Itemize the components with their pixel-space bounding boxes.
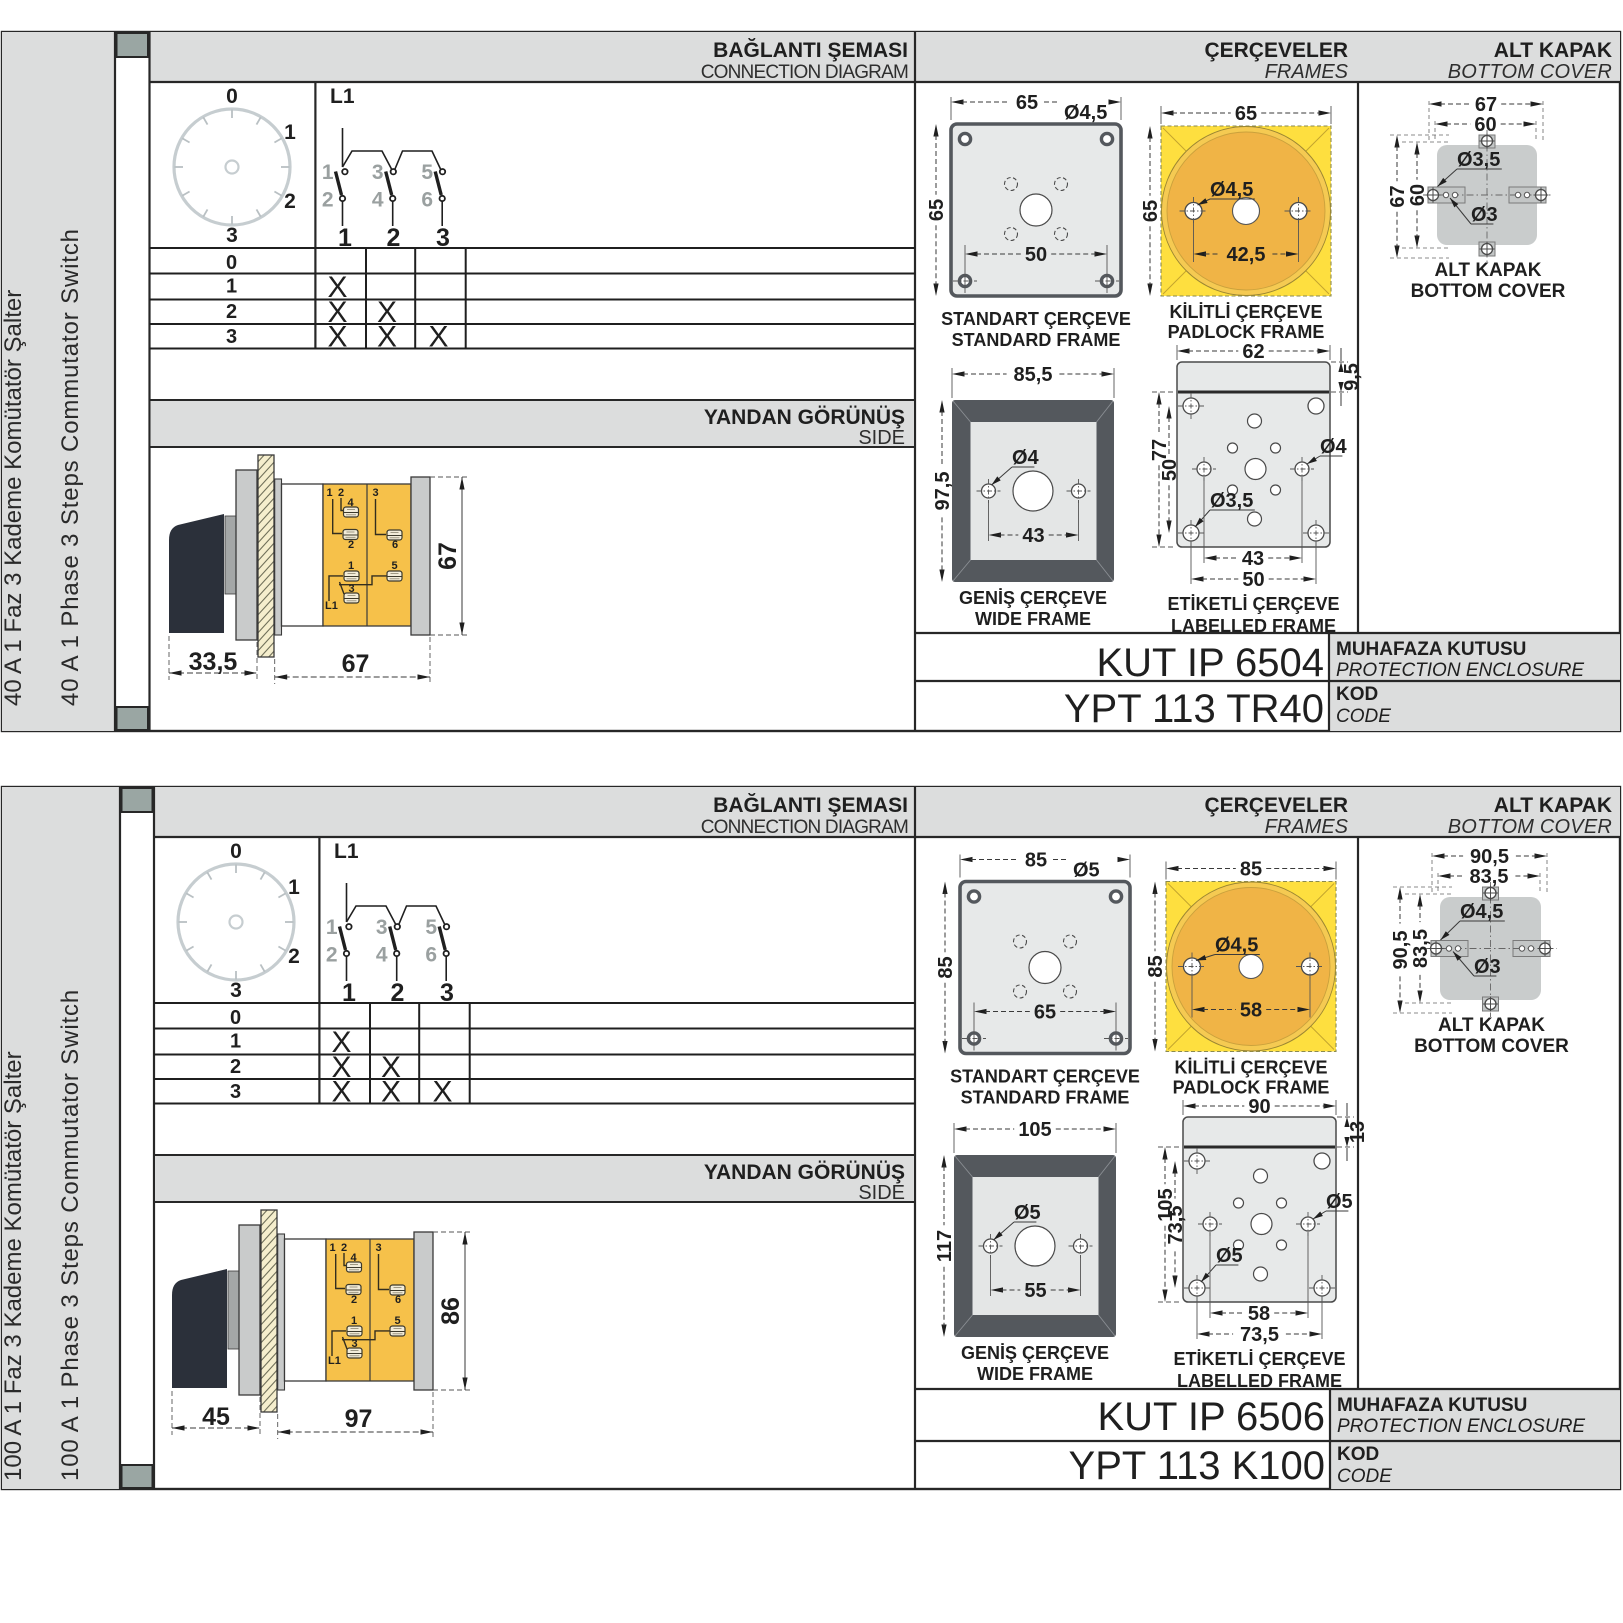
svg-text:YANDAN GÖRÜNÜŞ: YANDAN GÖRÜNÜŞ bbox=[704, 406, 905, 429]
svg-text:65: 65 bbox=[1235, 103, 1257, 125]
svg-text:1: 1 bbox=[226, 276, 237, 298]
svg-text:STANDART ÇERÇEVE: STANDART ÇERÇEVE bbox=[950, 1067, 1140, 1087]
svg-text:STANDART ÇERÇEVE: STANDART ÇERÇEVE bbox=[941, 309, 1131, 329]
svg-text:3: 3 bbox=[230, 1081, 241, 1103]
svg-text:Ø5: Ø5 bbox=[1326, 1191, 1353, 1213]
svg-text:6: 6 bbox=[392, 539, 398, 551]
svg-text:6: 6 bbox=[395, 1294, 401, 1306]
svg-text:117: 117 bbox=[934, 1230, 956, 1262]
svg-text:1: 1 bbox=[284, 121, 296, 144]
svg-text:3: 3 bbox=[226, 224, 238, 247]
svg-text:67: 67 bbox=[342, 650, 370, 678]
svg-text:CODE: CODE bbox=[1337, 1466, 1392, 1487]
svg-text:PADLOCK FRAME: PADLOCK FRAME bbox=[1168, 322, 1325, 342]
svg-text:2: 2 bbox=[326, 944, 338, 967]
svg-text:2: 2 bbox=[341, 1242, 347, 1254]
svg-text:65: 65 bbox=[1016, 92, 1038, 114]
svg-text:GENİŞ ÇERÇEVE: GENİŞ ÇERÇEVE bbox=[959, 588, 1107, 608]
svg-text:40 A 1 Phase 3 Steps Commutato: 40 A 1 Phase 3 Steps Commutator Switch bbox=[57, 228, 84, 706]
svg-text:BOTTOM COVER: BOTTOM COVER bbox=[1448, 61, 1612, 83]
svg-text:KOD: KOD bbox=[1336, 684, 1378, 705]
svg-text:40 A 1 Faz 3 Kademe Komütatör: 40 A 1 Faz 3 Kademe Komütatör Şalter bbox=[0, 290, 27, 706]
svg-text:4: 4 bbox=[350, 1252, 357, 1264]
svg-text:1: 1 bbox=[326, 487, 332, 499]
svg-text:KİLİTLİ ÇERÇEVE: KİLİTLİ ÇERÇEVE bbox=[1169, 302, 1322, 322]
svg-text:Ø3,5: Ø3,5 bbox=[1210, 490, 1253, 512]
svg-text:4: 4 bbox=[372, 189, 384, 212]
svg-text:73,5: 73,5 bbox=[1165, 1206, 1187, 1245]
svg-text:50: 50 bbox=[1242, 569, 1264, 591]
svg-text:3: 3 bbox=[230, 979, 242, 1002]
svg-text:4: 4 bbox=[376, 944, 388, 967]
svg-text:YPT 113 K100: YPT 113 K100 bbox=[1069, 1444, 1325, 1488]
svg-text:WIDE FRAME: WIDE FRAME bbox=[975, 609, 1091, 629]
svg-text:BOTTOM COVER: BOTTOM COVER bbox=[1448, 816, 1612, 838]
svg-text:Ø3: Ø3 bbox=[1471, 204, 1498, 226]
svg-text:GENİŞ ÇERÇEVE: GENİŞ ÇERÇEVE bbox=[961, 1343, 1109, 1363]
svg-text:Ø5: Ø5 bbox=[1014, 1202, 1041, 1224]
svg-text:97,5: 97,5 bbox=[932, 472, 954, 511]
svg-text:90,5: 90,5 bbox=[1470, 846, 1509, 868]
svg-text:4: 4 bbox=[347, 497, 354, 509]
svg-text:L1: L1 bbox=[328, 1355, 341, 1367]
svg-text:X: X bbox=[377, 321, 397, 354]
svg-text:0: 0 bbox=[230, 840, 242, 863]
svg-text:L1: L1 bbox=[325, 600, 338, 612]
svg-text:L1: L1 bbox=[334, 840, 359, 863]
svg-text:PROTECTION ENCLOSURE: PROTECTION ENCLOSURE bbox=[1337, 1416, 1585, 1437]
svg-text:3: 3 bbox=[372, 487, 378, 499]
svg-text:0: 0 bbox=[226, 85, 238, 108]
svg-text:1: 1 bbox=[329, 1242, 335, 1254]
svg-text:0: 0 bbox=[230, 1007, 241, 1029]
svg-text:CODE: CODE bbox=[1336, 706, 1391, 727]
svg-text:X: X bbox=[381, 1076, 401, 1109]
svg-text:Ø4,5: Ø4,5 bbox=[1210, 179, 1253, 201]
svg-text:BOTTOM COVER: BOTTOM COVER bbox=[1411, 281, 1566, 302]
svg-text:2: 2 bbox=[226, 301, 237, 323]
svg-text:73,5: 73,5 bbox=[1240, 1324, 1279, 1346]
svg-text:3: 3 bbox=[376, 916, 388, 939]
svg-text:3: 3 bbox=[226, 326, 237, 348]
svg-text:43: 43 bbox=[1022, 525, 1044, 547]
svg-text:Ø5: Ø5 bbox=[1073, 860, 1100, 882]
svg-text:YPT 113 TR40: YPT 113 TR40 bbox=[1064, 687, 1324, 731]
svg-text:50: 50 bbox=[1025, 244, 1047, 266]
svg-text:ETİKETLİ ÇERÇEVE: ETİKETLİ ÇERÇEVE bbox=[1173, 1349, 1345, 1369]
svg-text:Ø4,5: Ø4,5 bbox=[1215, 935, 1258, 957]
svg-text:97: 97 bbox=[345, 1405, 373, 1433]
svg-text:ALT KAPAK: ALT KAPAK bbox=[1494, 39, 1612, 62]
svg-text:1: 1 bbox=[351, 1315, 357, 1327]
svg-text:5: 5 bbox=[425, 916, 437, 939]
svg-text:2: 2 bbox=[230, 1056, 241, 1078]
svg-text:42,5: 42,5 bbox=[1227, 244, 1266, 266]
svg-text:77: 77 bbox=[1149, 439, 1171, 461]
svg-text:KOD: KOD bbox=[1337, 1444, 1379, 1465]
svg-text:100 A 1 Faz 3 Kademe Komütatör: 100 A 1 Faz 3 Kademe Komütatör Şalter bbox=[0, 1051, 27, 1481]
svg-text:2: 2 bbox=[288, 945, 300, 968]
svg-text:KUT IP 6506: KUT IP 6506 bbox=[1097, 1395, 1325, 1439]
svg-text:2: 2 bbox=[284, 190, 296, 213]
svg-text:13: 13 bbox=[1347, 1121, 1369, 1143]
svg-text:2: 2 bbox=[338, 487, 344, 499]
svg-text:BOTTOM COVER: BOTTOM COVER bbox=[1414, 1036, 1569, 1057]
svg-text:50: 50 bbox=[1159, 459, 1181, 481]
svg-text:MUHAFAZA KUTUSU: MUHAFAZA KUTUSU bbox=[1336, 639, 1526, 660]
svg-text:1: 1 bbox=[348, 560, 354, 572]
svg-text:105: 105 bbox=[1018, 1119, 1051, 1141]
svg-text:STANDARD FRAME: STANDARD FRAME bbox=[961, 1088, 1130, 1108]
svg-text:100 A 1 Phase 3 Steps Commutat: 100 A 1 Phase 3 Steps Commutator Switch bbox=[57, 989, 84, 1481]
svg-text:ETİKETLİ ÇERÇEVE: ETİKETLİ ÇERÇEVE bbox=[1167, 594, 1339, 614]
svg-text:1: 1 bbox=[322, 161, 334, 184]
svg-text:1: 1 bbox=[326, 916, 338, 939]
svg-text:90,5: 90,5 bbox=[1390, 931, 1412, 970]
svg-text:85: 85 bbox=[1025, 850, 1047, 872]
svg-text:Ø4,5: Ø4,5 bbox=[1064, 102, 1107, 124]
svg-text:83,5: 83,5 bbox=[1470, 866, 1509, 888]
svg-text:58: 58 bbox=[1248, 1303, 1270, 1325]
svg-text:KİLİTLİ ÇERÇEVE: KİLİTLİ ÇERÇEVE bbox=[1174, 1058, 1327, 1078]
svg-text:Ø5: Ø5 bbox=[1216, 1245, 1243, 1267]
svg-text:6: 6 bbox=[425, 944, 437, 967]
svg-text:62: 62 bbox=[1242, 341, 1264, 363]
svg-text:5: 5 bbox=[421, 161, 433, 184]
svg-text:X: X bbox=[331, 1076, 351, 1109]
svg-text:PADLOCK FRAME: PADLOCK FRAME bbox=[1173, 1078, 1330, 1098]
svg-text:67: 67 bbox=[1475, 94, 1497, 116]
svg-text:67: 67 bbox=[1387, 185, 1409, 207]
svg-text:85: 85 bbox=[935, 956, 957, 978]
svg-text:BAĞLANTI ŞEMASI: BAĞLANTI ŞEMASI bbox=[713, 38, 908, 62]
svg-text:65: 65 bbox=[1034, 1002, 1056, 1024]
svg-text:X: X bbox=[432, 1076, 452, 1109]
svg-text:Ø3,5: Ø3,5 bbox=[1457, 149, 1500, 171]
svg-text:KUT IP 6504: KUT IP 6504 bbox=[1096, 641, 1324, 685]
svg-text:FRAMES: FRAMES bbox=[1265, 61, 1349, 83]
svg-text:2: 2 bbox=[322, 189, 334, 212]
svg-text:5: 5 bbox=[391, 560, 397, 572]
svg-text:Ø4: Ø4 bbox=[1320, 436, 1348, 458]
svg-text:85: 85 bbox=[1145, 955, 1167, 977]
svg-text:BAĞLANTI ŞEMASI: BAĞLANTI ŞEMASI bbox=[713, 793, 908, 817]
svg-text:SIDE: SIDE bbox=[858, 427, 905, 449]
svg-text:ÇERÇEVELER: ÇERÇEVELER bbox=[1204, 794, 1348, 817]
svg-text:X: X bbox=[428, 321, 448, 354]
svg-text:45: 45 bbox=[202, 1403, 230, 1431]
svg-text:ALT KAPAK: ALT KAPAK bbox=[1435, 260, 1542, 281]
svg-text:0: 0 bbox=[226, 252, 237, 274]
svg-text:L1: L1 bbox=[330, 85, 355, 108]
svg-text:WIDE FRAME: WIDE FRAME bbox=[977, 1364, 1093, 1384]
svg-text:65: 65 bbox=[1140, 200, 1162, 222]
svg-text:ALT KAPAK: ALT KAPAK bbox=[1438, 1015, 1545, 1036]
svg-text:Ø4: Ø4 bbox=[1012, 447, 1040, 469]
svg-text:ÇERÇEVELER: ÇERÇEVELER bbox=[1204, 39, 1348, 62]
svg-text:2: 2 bbox=[351, 1294, 357, 1306]
svg-text:85,5: 85,5 bbox=[1014, 364, 1053, 386]
svg-text:MUHAFAZA KUTUSU: MUHAFAZA KUTUSU bbox=[1337, 1395, 1527, 1416]
svg-text:CONNECTION DIAGRAM: CONNECTION DIAGRAM bbox=[701, 817, 908, 838]
svg-text:STANDARD FRAME: STANDARD FRAME bbox=[952, 330, 1121, 350]
svg-text:1: 1 bbox=[288, 876, 300, 899]
svg-text:3: 3 bbox=[375, 1242, 381, 1254]
svg-text:85: 85 bbox=[1240, 859, 1262, 881]
svg-text:5: 5 bbox=[394, 1315, 400, 1327]
svg-text:FRAMES: FRAMES bbox=[1265, 816, 1349, 838]
svg-text:60: 60 bbox=[1474, 114, 1496, 136]
svg-text:X: X bbox=[327, 321, 347, 354]
svg-text:67: 67 bbox=[434, 542, 462, 570]
svg-text:Ø3: Ø3 bbox=[1474, 956, 1501, 978]
svg-text:55: 55 bbox=[1024, 1280, 1046, 1302]
svg-text:ALT KAPAK: ALT KAPAK bbox=[1494, 794, 1612, 817]
svg-text:86: 86 bbox=[437, 1297, 465, 1325]
svg-text:9,5: 9,5 bbox=[1341, 363, 1363, 391]
svg-text:43: 43 bbox=[1242, 548, 1264, 570]
svg-text:1: 1 bbox=[230, 1031, 241, 1053]
svg-text:6: 6 bbox=[421, 189, 433, 212]
svg-text:65: 65 bbox=[926, 199, 948, 221]
svg-text:33,5: 33,5 bbox=[189, 648, 238, 676]
svg-text:SIDE: SIDE bbox=[858, 1182, 905, 1204]
svg-text:PROTECTION ENCLOSURE: PROTECTION ENCLOSURE bbox=[1336, 660, 1584, 681]
svg-text:CONNECTION DIAGRAM: CONNECTION DIAGRAM bbox=[701, 62, 908, 83]
svg-text:2: 2 bbox=[348, 539, 354, 551]
svg-text:58: 58 bbox=[1240, 1000, 1262, 1022]
svg-text:3: 3 bbox=[372, 161, 384, 184]
svg-text:90: 90 bbox=[1248, 1096, 1270, 1118]
svg-text:Ø4,5: Ø4,5 bbox=[1460, 901, 1503, 923]
svg-text:YANDAN GÖRÜNÜŞ: YANDAN GÖRÜNÜŞ bbox=[704, 1161, 905, 1184]
